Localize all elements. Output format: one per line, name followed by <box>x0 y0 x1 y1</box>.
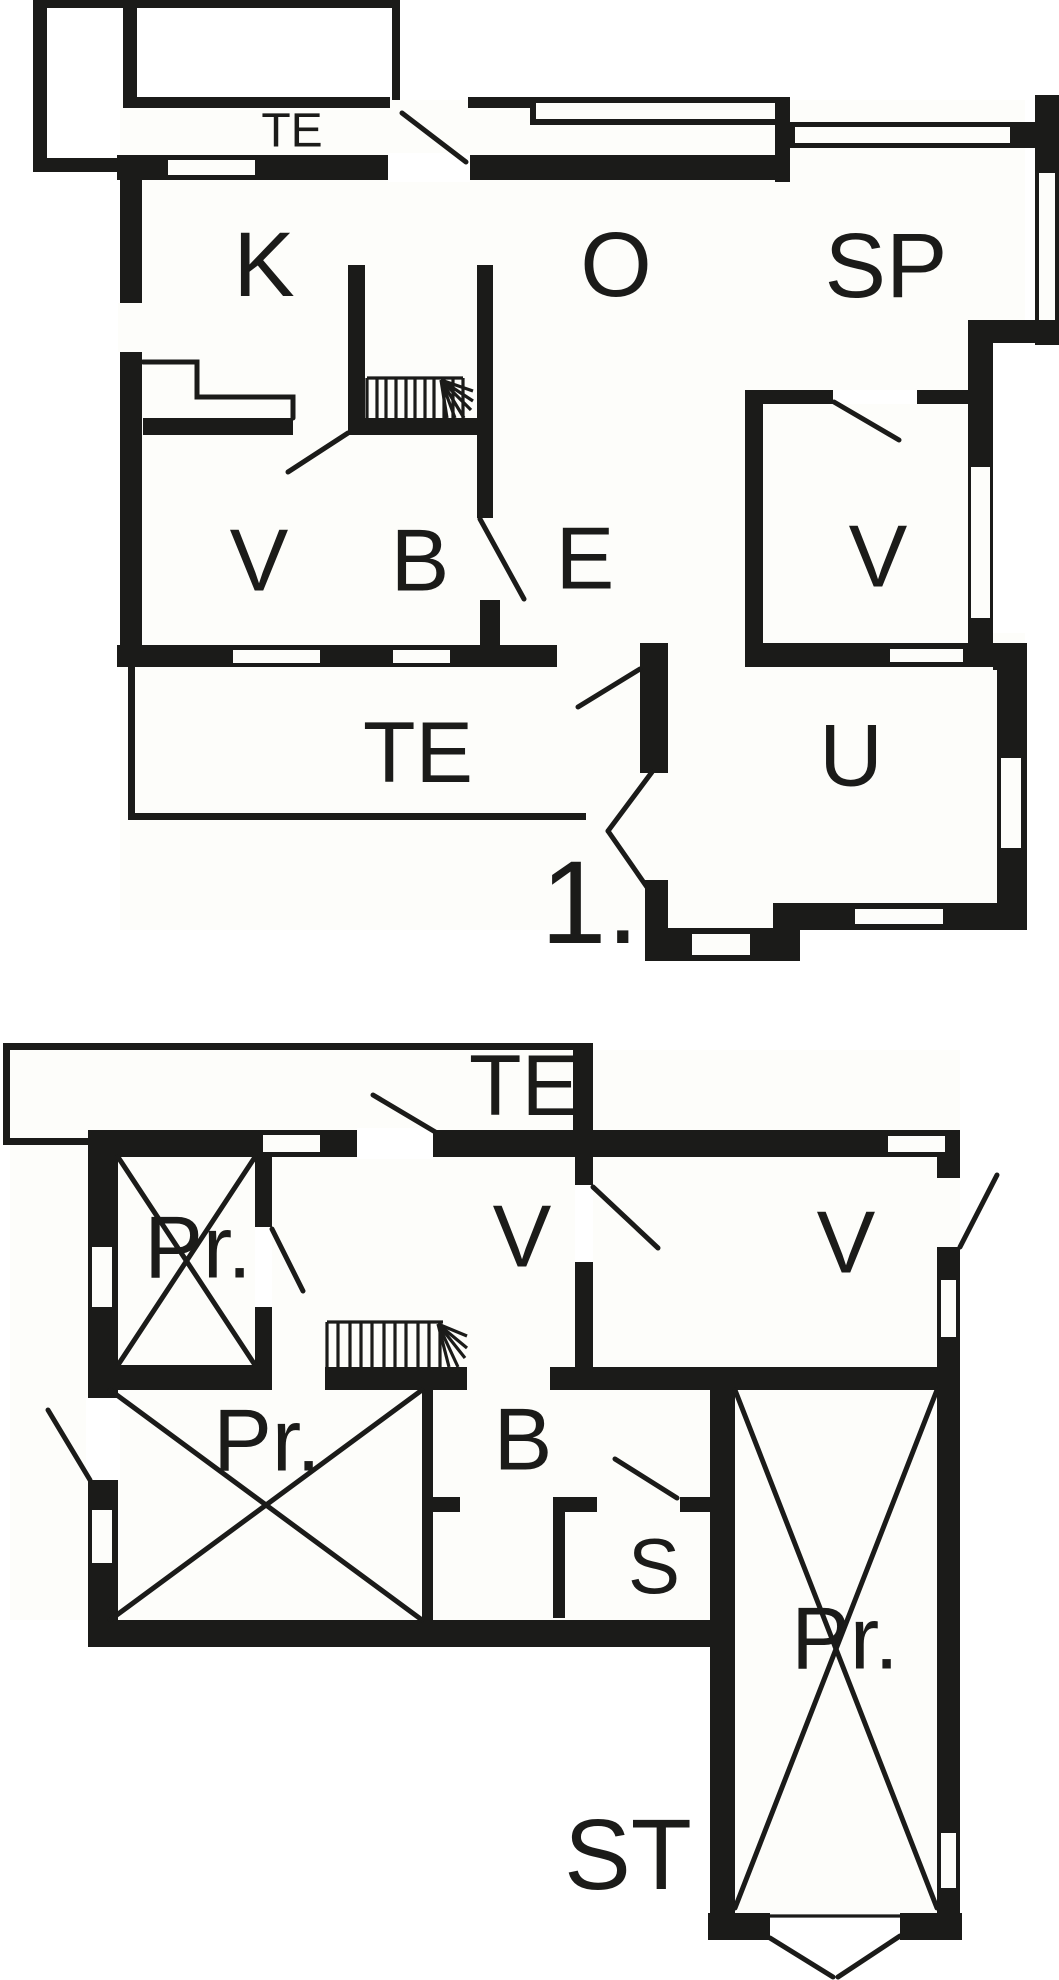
terrace-window <box>536 103 784 119</box>
door-opening <box>255 1227 272 1307</box>
ground-floor-plan: TE Pr. V V Pr. B S Pr. ST <box>3 1038 997 1977</box>
window <box>855 909 943 924</box>
porch-edge <box>770 1938 833 1977</box>
room-label-bath: B <box>391 511 450 610</box>
room-label-utility: U <box>819 706 883 805</box>
exterior-door-opening <box>86 1398 120 1480</box>
room-label-terrace: TE <box>469 1038 579 1134</box>
window <box>393 650 450 663</box>
window <box>971 467 990 618</box>
window <box>168 160 255 175</box>
window <box>795 127 1010 143</box>
window <box>941 1833 956 1888</box>
room-label-v-east: V <box>849 507 908 606</box>
window <box>888 1136 945 1152</box>
window <box>1039 173 1055 323</box>
room-label-sauna: S <box>628 1522 680 1610</box>
balcony-door-leaf <box>960 1175 997 1247</box>
floorplan-canvas: TE K O SP V B E V TE U 1. <box>0 0 1059 1980</box>
floorplan-drawing: TE K O SP V B E V TE U 1. <box>0 0 1059 1980</box>
window <box>263 1135 320 1152</box>
window <box>92 1247 112 1307</box>
ground-floor-label: ST <box>564 1799 692 1911</box>
room-label-terrace-south: TE <box>363 705 473 801</box>
room-label-bath: B <box>494 1390 553 1489</box>
room-label-storage-nw: Pr. <box>144 1198 252 1297</box>
window <box>692 934 750 955</box>
room-label-entry: E <box>556 509 615 608</box>
floor1-number-label: 1. <box>541 837 639 969</box>
room-label-terrace-top: TE <box>261 105 322 158</box>
window <box>941 1280 956 1337</box>
room-label-living: O <box>580 214 652 316</box>
room-label-v-east: V <box>817 1193 876 1292</box>
window <box>1001 758 1021 848</box>
room-label-v-west: V <box>230 511 289 610</box>
window <box>118 303 144 352</box>
terrace-door-opening <box>357 1128 433 1159</box>
room-label-storage-tall: Pr. <box>791 1589 899 1688</box>
room-label-storage-sw: Pr. <box>213 1391 321 1490</box>
floor-1-plan: TE K O SP V B E V TE U 1. <box>33 0 1059 969</box>
room-label-kitchen: K <box>233 214 294 316</box>
window <box>233 650 320 663</box>
door-opening <box>575 1185 593 1262</box>
room-label-bedroom-sp: SP <box>825 215 948 317</box>
room-label-hall: V <box>493 1187 552 1286</box>
door-opening <box>833 390 917 404</box>
porch-edge <box>838 1936 900 1977</box>
window <box>890 649 963 662</box>
window <box>92 1510 112 1563</box>
